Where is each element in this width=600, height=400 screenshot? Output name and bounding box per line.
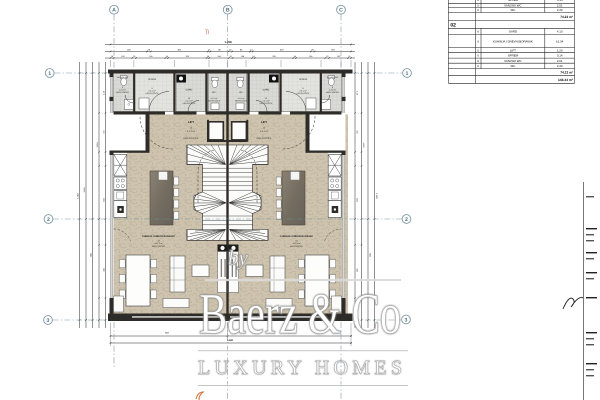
svg-text:1.20: 1.20	[557, 48, 563, 52]
svg-text:9: 9	[332, 86, 333, 89]
svg-text:1.298: 1.298	[224, 40, 232, 44]
svg-text:A: A	[112, 8, 116, 14]
svg-text:74.22 m²: 74.22 m²	[560, 71, 573, 75]
svg-text:SPREM: SPREM	[508, 54, 519, 58]
svg-text:VANJSKI WC: VANJSKI WC	[504, 59, 521, 63]
svg-text:148.44 m²: 148.44 m²	[558, 78, 574, 82]
svg-text:WC: WC	[212, 91, 216, 94]
svg-text:VANJSKI WC: VANJSKI WC	[117, 76, 129, 79]
svg-text:12: 12	[295, 240, 297, 243]
svg-text:4.13: 4.13	[557, 30, 563, 34]
svg-text:3.14: 3.14	[557, 0, 563, 2]
svg-text:B: B	[226, 8, 230, 14]
svg-text:C: C	[339, 8, 343, 14]
svg-text:KER.PLOČICE: KER.PLOČICE	[152, 245, 165, 248]
svg-text:1.118: 1.118	[83, 187, 86, 193]
svg-text:KER.PLOČICE: KER.PLOČICE	[235, 100, 248, 103]
svg-text:02: 02	[450, 23, 456, 29]
svg-text:1.118: 1.118	[96, 142, 99, 148]
svg-text:KER.PLOČICE: KER.PLOČICE	[184, 137, 199, 140]
svg-text:1.118: 1.118	[362, 142, 365, 148]
svg-text:1.482: 1.482	[76, 192, 79, 198]
svg-text:A 4.1 m²: A 4.1 m²	[262, 100, 269, 103]
svg-text:A 5.1 m²: A 5.1 m²	[299, 90, 306, 93]
svg-text:KUHINJA I DNEVNI BORAVAK: KUHINJA I DNEVNI BORAVAK	[280, 235, 313, 238]
svg-text:WC: WC	[510, 8, 515, 12]
svg-text:KER.PLOČICE: KER.PLOČICE	[297, 92, 310, 95]
svg-text:KER.PLOČICE: KER.PLOČICE	[146, 92, 159, 95]
svg-text:A 1.2 m²: A 1.2 m²	[187, 130, 195, 133]
svg-text:61.34: 61.34	[556, 39, 564, 43]
svg-text:2: 2	[47, 217, 50, 223]
svg-text:2.40: 2.40	[557, 8, 563, 12]
svg-text:LIFT: LIFT	[261, 120, 267, 124]
svg-text:SPREM: SPREM	[299, 78, 307, 81]
svg-text:12: 12	[188, 97, 190, 100]
svg-text:12: 12	[265, 97, 267, 100]
svg-text:KER.PLOČICE: KER.PLOČICE	[257, 137, 272, 140]
svg-text:A 5.1 m²: A 5.1 m²	[148, 90, 155, 93]
svg-text:9: 9	[302, 87, 303, 90]
svg-text:KER.PLOČICE: KER.PLOČICE	[260, 102, 273, 105]
svg-text:A 2.0 m²: A 2.0 m²	[119, 89, 126, 92]
svg-text:WC: WC	[239, 91, 243, 94]
svg-text:VANJSKI WC: VANJSKI WC	[504, 4, 521, 8]
svg-text:KUHINJA I DNEVNI BORAVAK: KUHINJA I DNEVNI BORAVAK	[142, 235, 175, 238]
svg-text:1: 1	[48, 71, 51, 77]
svg-text:Baerz & Co: Baerz & Co	[199, 281, 401, 346]
svg-text:1.482: 1.482	[375, 193, 378, 199]
svg-text:A 57,3 m²: A 57,3 m²	[292, 242, 300, 245]
svg-text:2.40: 2.40	[557, 64, 563, 68]
svg-text:GARD: GARD	[263, 89, 270, 92]
svg-text:A 2.0 m²: A 2.0 m²	[329, 89, 336, 92]
svg-text:A 1.2 m²: A 1.2 m²	[260, 130, 268, 133]
svg-text:2.01: 2.01	[557, 59, 563, 63]
svg-text:2: 2	[405, 217, 408, 223]
svg-text:KER.PLOČICE: KER.PLOČICE	[290, 245, 303, 248]
svg-text:A 4.1 m²: A 4.1 m²	[185, 100, 192, 103]
svg-text:KER.PLOČICE: KER.PLOČICE	[116, 91, 129, 94]
svg-text:2.01: 2.01	[557, 4, 563, 8]
svg-text:74.22 m²: 74.22 m²	[560, 15, 573, 19]
svg-text:KER.PLOČICE: KER.PLOČICE	[208, 100, 221, 103]
svg-text:3.14: 3.14	[557, 54, 563, 58]
svg-text:LIFT: LIFT	[510, 48, 516, 52]
svg-text:GARD: GARD	[509, 30, 517, 34]
svg-text:3: 3	[47, 318, 50, 324]
svg-text:KER.PLOČICE: KER.PLOČICE	[326, 91, 339, 94]
svg-text:1: 1	[406, 71, 409, 77]
svg-text:9: 9	[122, 86, 123, 89]
svg-text:WC: WC	[510, 64, 515, 68]
svg-text:LIFT: LIFT	[188, 120, 194, 124]
svg-text:SPREM: SPREM	[508, 0, 519, 2]
svg-text:3: 3	[405, 317, 408, 323]
svg-text:KUHINJA I DNEVNI BORAVAK: KUHINJA I DNEVNI BORAVAK	[493, 39, 533, 43]
svg-text:KER.PLOČICE: KER.PLOČICE	[183, 102, 196, 105]
svg-text:SPREM: SPREM	[148, 78, 156, 81]
svg-text:VANJSKI WC: VANJSKI WC	[327, 76, 339, 79]
svg-text:by: by	[228, 246, 249, 270]
svg-text:12: 12	[157, 240, 159, 243]
svg-text:A 57,3 m²: A 57,3 m²	[154, 242, 162, 245]
svg-text:GARD: GARD	[186, 89, 193, 92]
svg-text:9: 9	[151, 87, 152, 90]
